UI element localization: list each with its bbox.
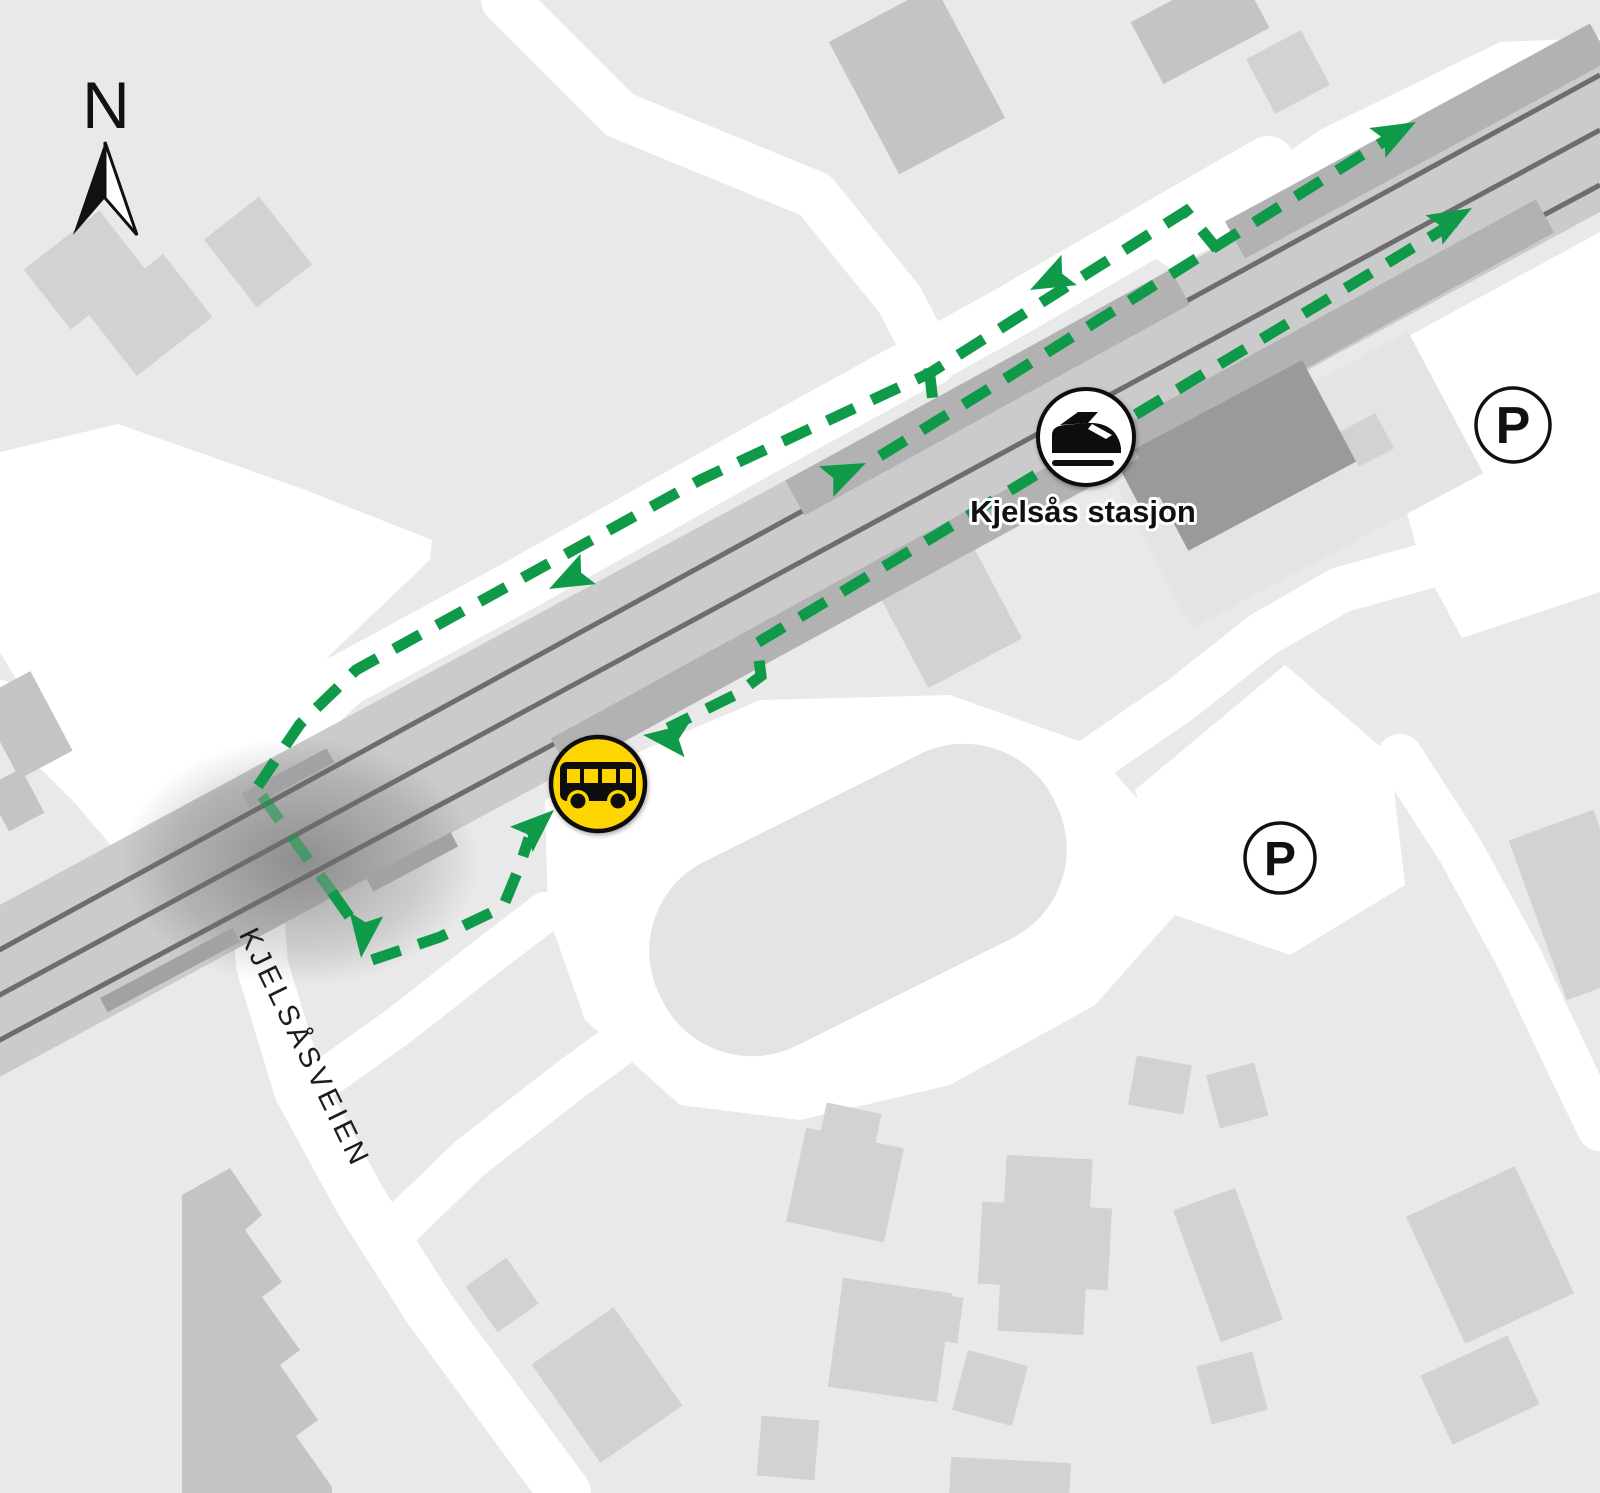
parking-label: P <box>1264 833 1296 886</box>
station-label: Kjelsås stasjon <box>970 494 1196 529</box>
parking-label: P <box>1496 397 1531 455</box>
building-shape <box>949 1457 1071 1493</box>
route-connector <box>929 368 933 402</box>
bus-stop-marker <box>551 737 645 831</box>
building-shape <box>756 1416 819 1481</box>
compass-label: N <box>82 68 130 142</box>
train-station-marker <box>1038 389 1134 485</box>
station-map: Kjelsås stasjon P P KJELSÅSVEIEN N <box>0 0 1600 1493</box>
parking-marker-north: P <box>1476 388 1550 462</box>
map-canvas: Kjelsås stasjon P P KJELSÅSVEIEN N <box>0 0 1600 1493</box>
parking-marker-south: P <box>1245 823 1315 893</box>
building-shape <box>1128 1056 1192 1115</box>
